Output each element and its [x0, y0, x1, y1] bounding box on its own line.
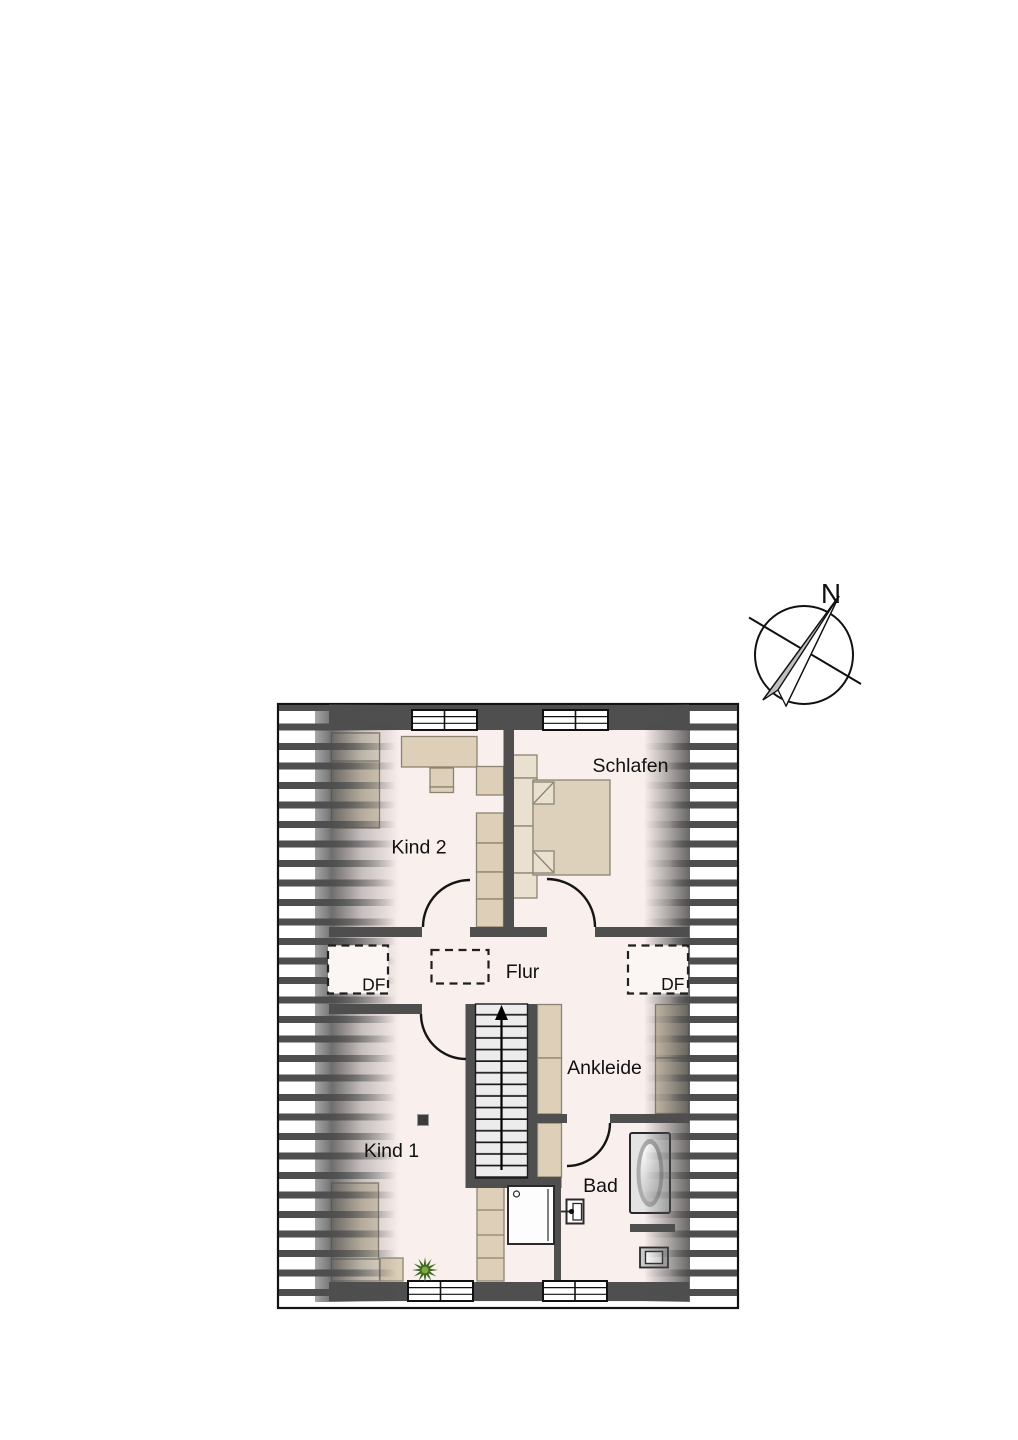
- wall-stair-right: [528, 1004, 538, 1178]
- floorplan-canvas: Schlafen Kind 2 Flur Ankleide Kind 1 Bad…: [0, 0, 1018, 1440]
- compass-needle-gray: [763, 596, 839, 700]
- table-kind2: [430, 768, 454, 787]
- chair-kind2: [430, 787, 454, 793]
- wall-center-vertical: [504, 728, 515, 937]
- compass-rose: N: [749, 578, 861, 706]
- plant-center: [422, 1267, 429, 1274]
- headboard-cabinet: [513, 755, 537, 778]
- wall-ankleide-bad-left: [528, 1114, 568, 1123]
- window: [543, 1281, 607, 1301]
- room-label-kind1: Kind 1: [364, 1140, 419, 1162]
- compass-north-label: N: [821, 578, 841, 609]
- cabinet-kind2-cell: [477, 813, 504, 843]
- compass-needle-white: [778, 596, 839, 706]
- room-label-bad: Bad: [583, 1175, 618, 1197]
- cabinet-kind2-cell: [477, 872, 504, 899]
- wardrobe-kind2: [402, 737, 478, 768]
- roof-window-label-right: DF: [661, 974, 684, 994]
- roof-window-label-left: DF: [362, 975, 385, 995]
- cabinet-kind2-cell: [477, 899, 504, 927]
- window: [408, 1281, 473, 1301]
- roof-hatch-fade-left: [329, 705, 395, 1309]
- wall-stair-left: [466, 1004, 476, 1188]
- cabinet-kind2-cell: [477, 767, 504, 796]
- window: [543, 710, 608, 730]
- headboard-cabinet: [513, 873, 537, 898]
- washbasin-bowl: [573, 1204, 582, 1221]
- room-label-kind2: Kind 2: [391, 837, 446, 859]
- staircase: [476, 1004, 528, 1178]
- room-label-ankleide: Ankleide: [567, 1057, 642, 1079]
- shower: [508, 1186, 554, 1244]
- window: [412, 710, 477, 730]
- cabinet-bad: [538, 1123, 562, 1177]
- cabinet-kind2-cell: [477, 843, 504, 872]
- chimney: [418, 1115, 429, 1126]
- washbasin-tap-dot: [569, 1209, 574, 1214]
- room-label-flur: Flur: [506, 961, 540, 983]
- cabinet-kind1: [477, 1187, 504, 1281]
- wardrobe-ankleide-left: [538, 1058, 562, 1114]
- roof-hatch-fade-right: [644, 705, 689, 1309]
- room-label-schlafen: Schlafen: [593, 755, 669, 777]
- wardrobe-ankleide-left: [538, 1005, 562, 1059]
